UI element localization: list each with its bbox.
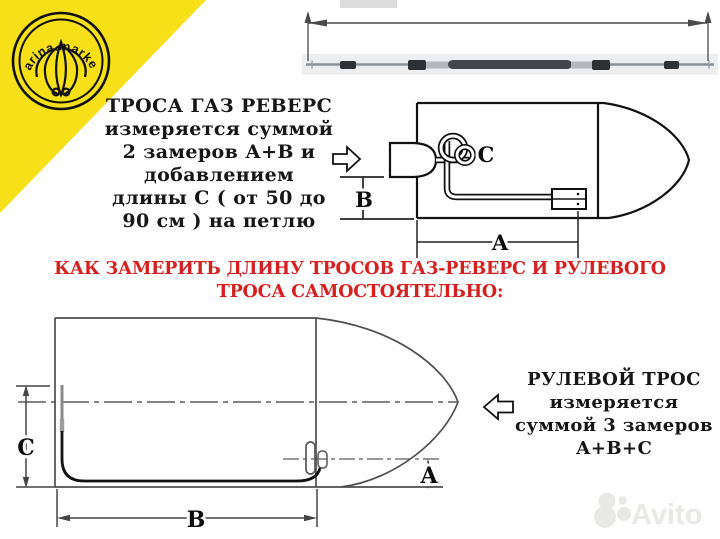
- dim-b-top: [340, 177, 414, 219]
- note-line: добавлением: [88, 164, 350, 187]
- main-heading: КАК ЗАМЕРИТЬ ДЛИНУ ТРОСОВ ГАЗ-РЕВЕРС И Р…: [0, 258, 720, 304]
- outboard-motor: [390, 143, 436, 177]
- cable-length-dimension: [305, 11, 712, 61]
- avito-watermark: Avito: [594, 493, 702, 532]
- note-line: 90 см ) на петлю: [88, 210, 350, 233]
- cable-fitting: [592, 60, 610, 70]
- note-line: длины С ( от 50 до: [88, 187, 350, 210]
- cable-sleeve: [571, 62, 593, 69]
- label-c-bottom: C: [17, 435, 35, 461]
- label-b-bottom: B: [187, 507, 206, 533]
- steering-cable-route: [62, 431, 320, 481]
- cable-fitting: [664, 61, 679, 69]
- cable-sleeve: [426, 62, 449, 69]
- watermark-text: Avito: [631, 499, 702, 531]
- note-line: измеряется суммой: [88, 118, 350, 141]
- note-line: А+В+С: [495, 437, 720, 460]
- cable-photo: [302, 54, 718, 75]
- note-line: ТРОСА ГАЗ РЕВЕРС: [88, 95, 350, 118]
- heading-line: ТРОСА САМОСТОЯТЕЛЬНО:: [0, 281, 720, 304]
- label-a-bottom: A: [419, 463, 438, 489]
- cropped-artifact: [340, 0, 397, 8]
- cable-midsection: [448, 60, 572, 69]
- label-c-top: C: [478, 142, 495, 167]
- note-line: суммой 3 замеров: [495, 414, 720, 437]
- steering-boat-diagram: C B A: [16, 318, 513, 533]
- label-a-top: A: [491, 230, 509, 255]
- steering-wheel: [306, 442, 315, 474]
- label-b-top: B: [355, 187, 373, 212]
- heading-line: КАК ЗАМЕРИТЬ ДЛИНУ ТРОСОВ ГАЗ-РЕВЕРС И Р…: [0, 258, 720, 281]
- note-line: РУЛЕВОЙ ТРОС: [495, 368, 720, 391]
- note-line: измеряется: [495, 391, 720, 414]
- throttle-boat-diagram: B A C: [333, 103, 689, 258]
- throttle-cable-note: ТРОСА ГАЗ РЕВЕРС измеряется суммой 2 зам…: [88, 95, 350, 233]
- cable-fitting: [340, 61, 356, 69]
- cable-fitting: [408, 60, 426, 70]
- listing-image: B A C: [0, 0, 720, 539]
- steering-cable-note: РУЛЕВОЙ ТРОС измеряется суммой 3 замеров…: [495, 368, 720, 460]
- note-line: 2 замеров А+В и: [88, 141, 350, 164]
- boat-bow: [604, 103, 689, 218]
